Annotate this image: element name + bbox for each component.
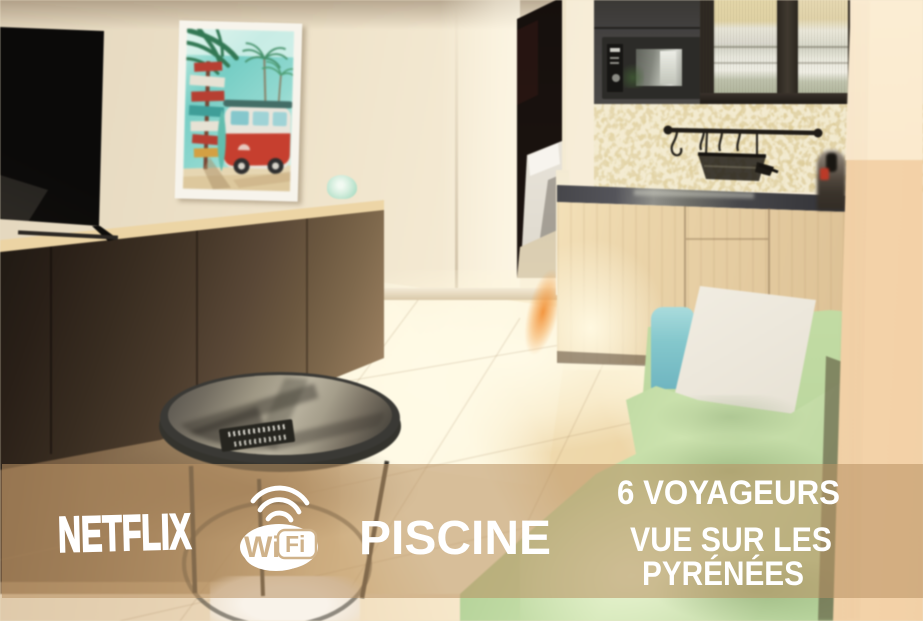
svg-text:PISCINE: PISCINE	[359, 512, 551, 565]
svg-text:VUE SUR LES: VUE SUR LES	[630, 521, 832, 559]
svg-text:Fi: Fi	[285, 531, 305, 557]
svg-text:PYRÉNÉES: PYRÉNÉES	[642, 555, 804, 593]
svg-text:NETFLIX: NETFLIX	[57, 505, 191, 560]
svg-text:6 VOYAGEURS: 6 VOYAGEURS	[617, 474, 840, 512]
svg-text:Wi: Wi	[244, 531, 280, 564]
